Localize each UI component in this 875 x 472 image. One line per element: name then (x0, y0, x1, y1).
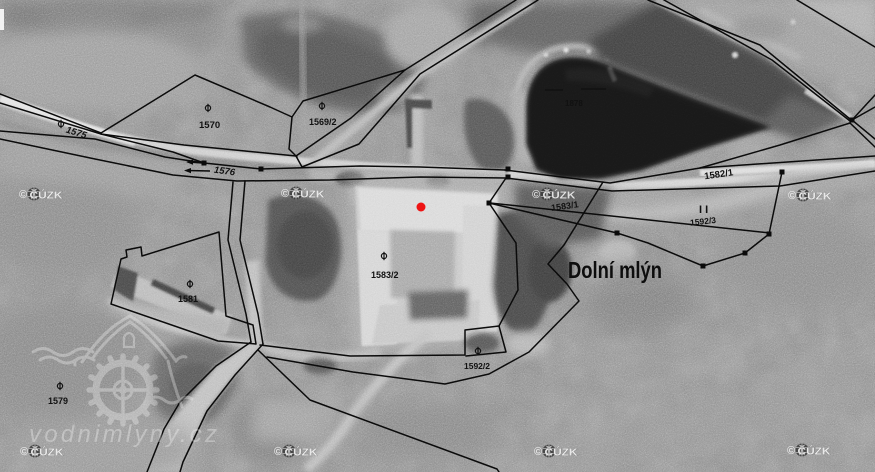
svg-text:©: © (19, 189, 27, 201)
svg-text:ČÚZK: ČÚZK (285, 446, 318, 459)
svg-text:ČÚZK: ČÚZK (799, 190, 832, 203)
svg-text:1579: 1579 (48, 396, 68, 406)
svg-text:ČÚZK: ČÚZK (543, 189, 576, 202)
svg-text:ČÚZK: ČÚZK (798, 445, 831, 458)
svg-text:I I: I I (699, 204, 708, 216)
svg-text:©: © (274, 446, 282, 458)
svg-text:©: © (787, 445, 795, 457)
svg-text:1878: 1878 (565, 99, 583, 108)
svg-text:ČÚZK: ČÚZK (545, 446, 578, 459)
svg-text:1569/2: 1569/2 (309, 117, 337, 127)
svg-text:1581: 1581 (178, 294, 198, 304)
svg-text:ČÚZK: ČÚZK (31, 446, 64, 459)
svg-text:ČÚZK: ČÚZK (30, 189, 63, 202)
svg-text:©: © (534, 446, 542, 458)
svg-text:©: © (281, 188, 289, 200)
svg-text:©: © (20, 446, 28, 458)
svg-text:1592/2: 1592/2 (464, 361, 490, 371)
svg-text:ČÚZK: ČÚZK (292, 188, 325, 201)
svg-text:©: © (532, 189, 540, 201)
svg-text:©: © (788, 190, 796, 202)
svg-text:1583/2: 1583/2 (371, 270, 399, 280)
svg-text:1570: 1570 (199, 120, 220, 131)
svg-text:Dolní mlýn: Dolní mlýn (568, 257, 662, 283)
